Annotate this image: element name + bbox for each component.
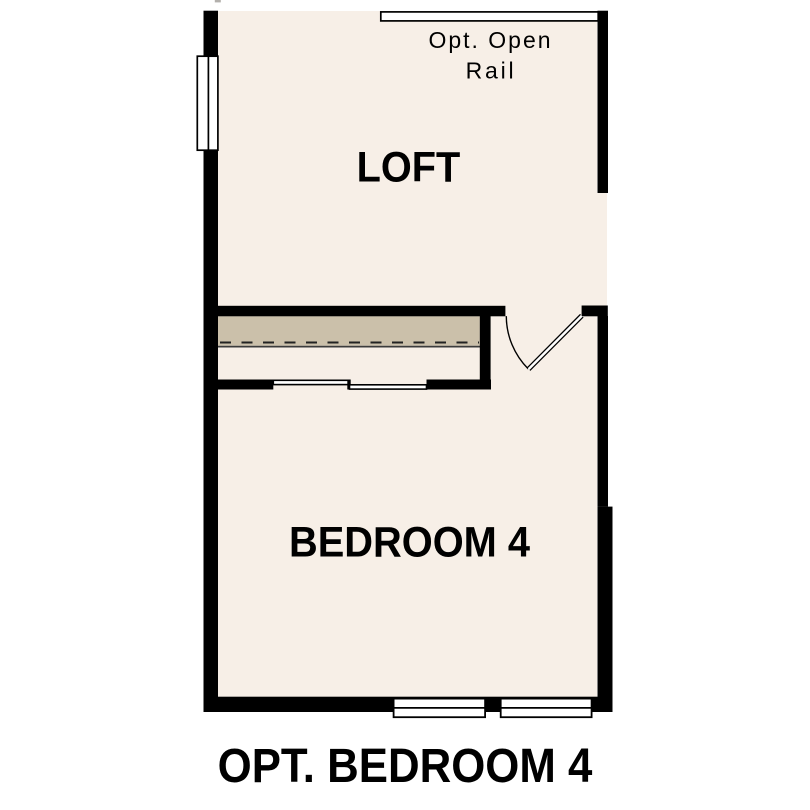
svg-text:BEDROOM 4: BEDROOM 4 [289, 518, 530, 566]
svg-text:Rail: Rail [466, 58, 517, 84]
svg-text:OPT. BEDROOM 4: OPT. BEDROOM 4 [218, 738, 593, 792]
svg-text:LOFT: LOFT [357, 143, 461, 191]
svg-text:Opt. Open: Opt. Open [428, 27, 552, 53]
